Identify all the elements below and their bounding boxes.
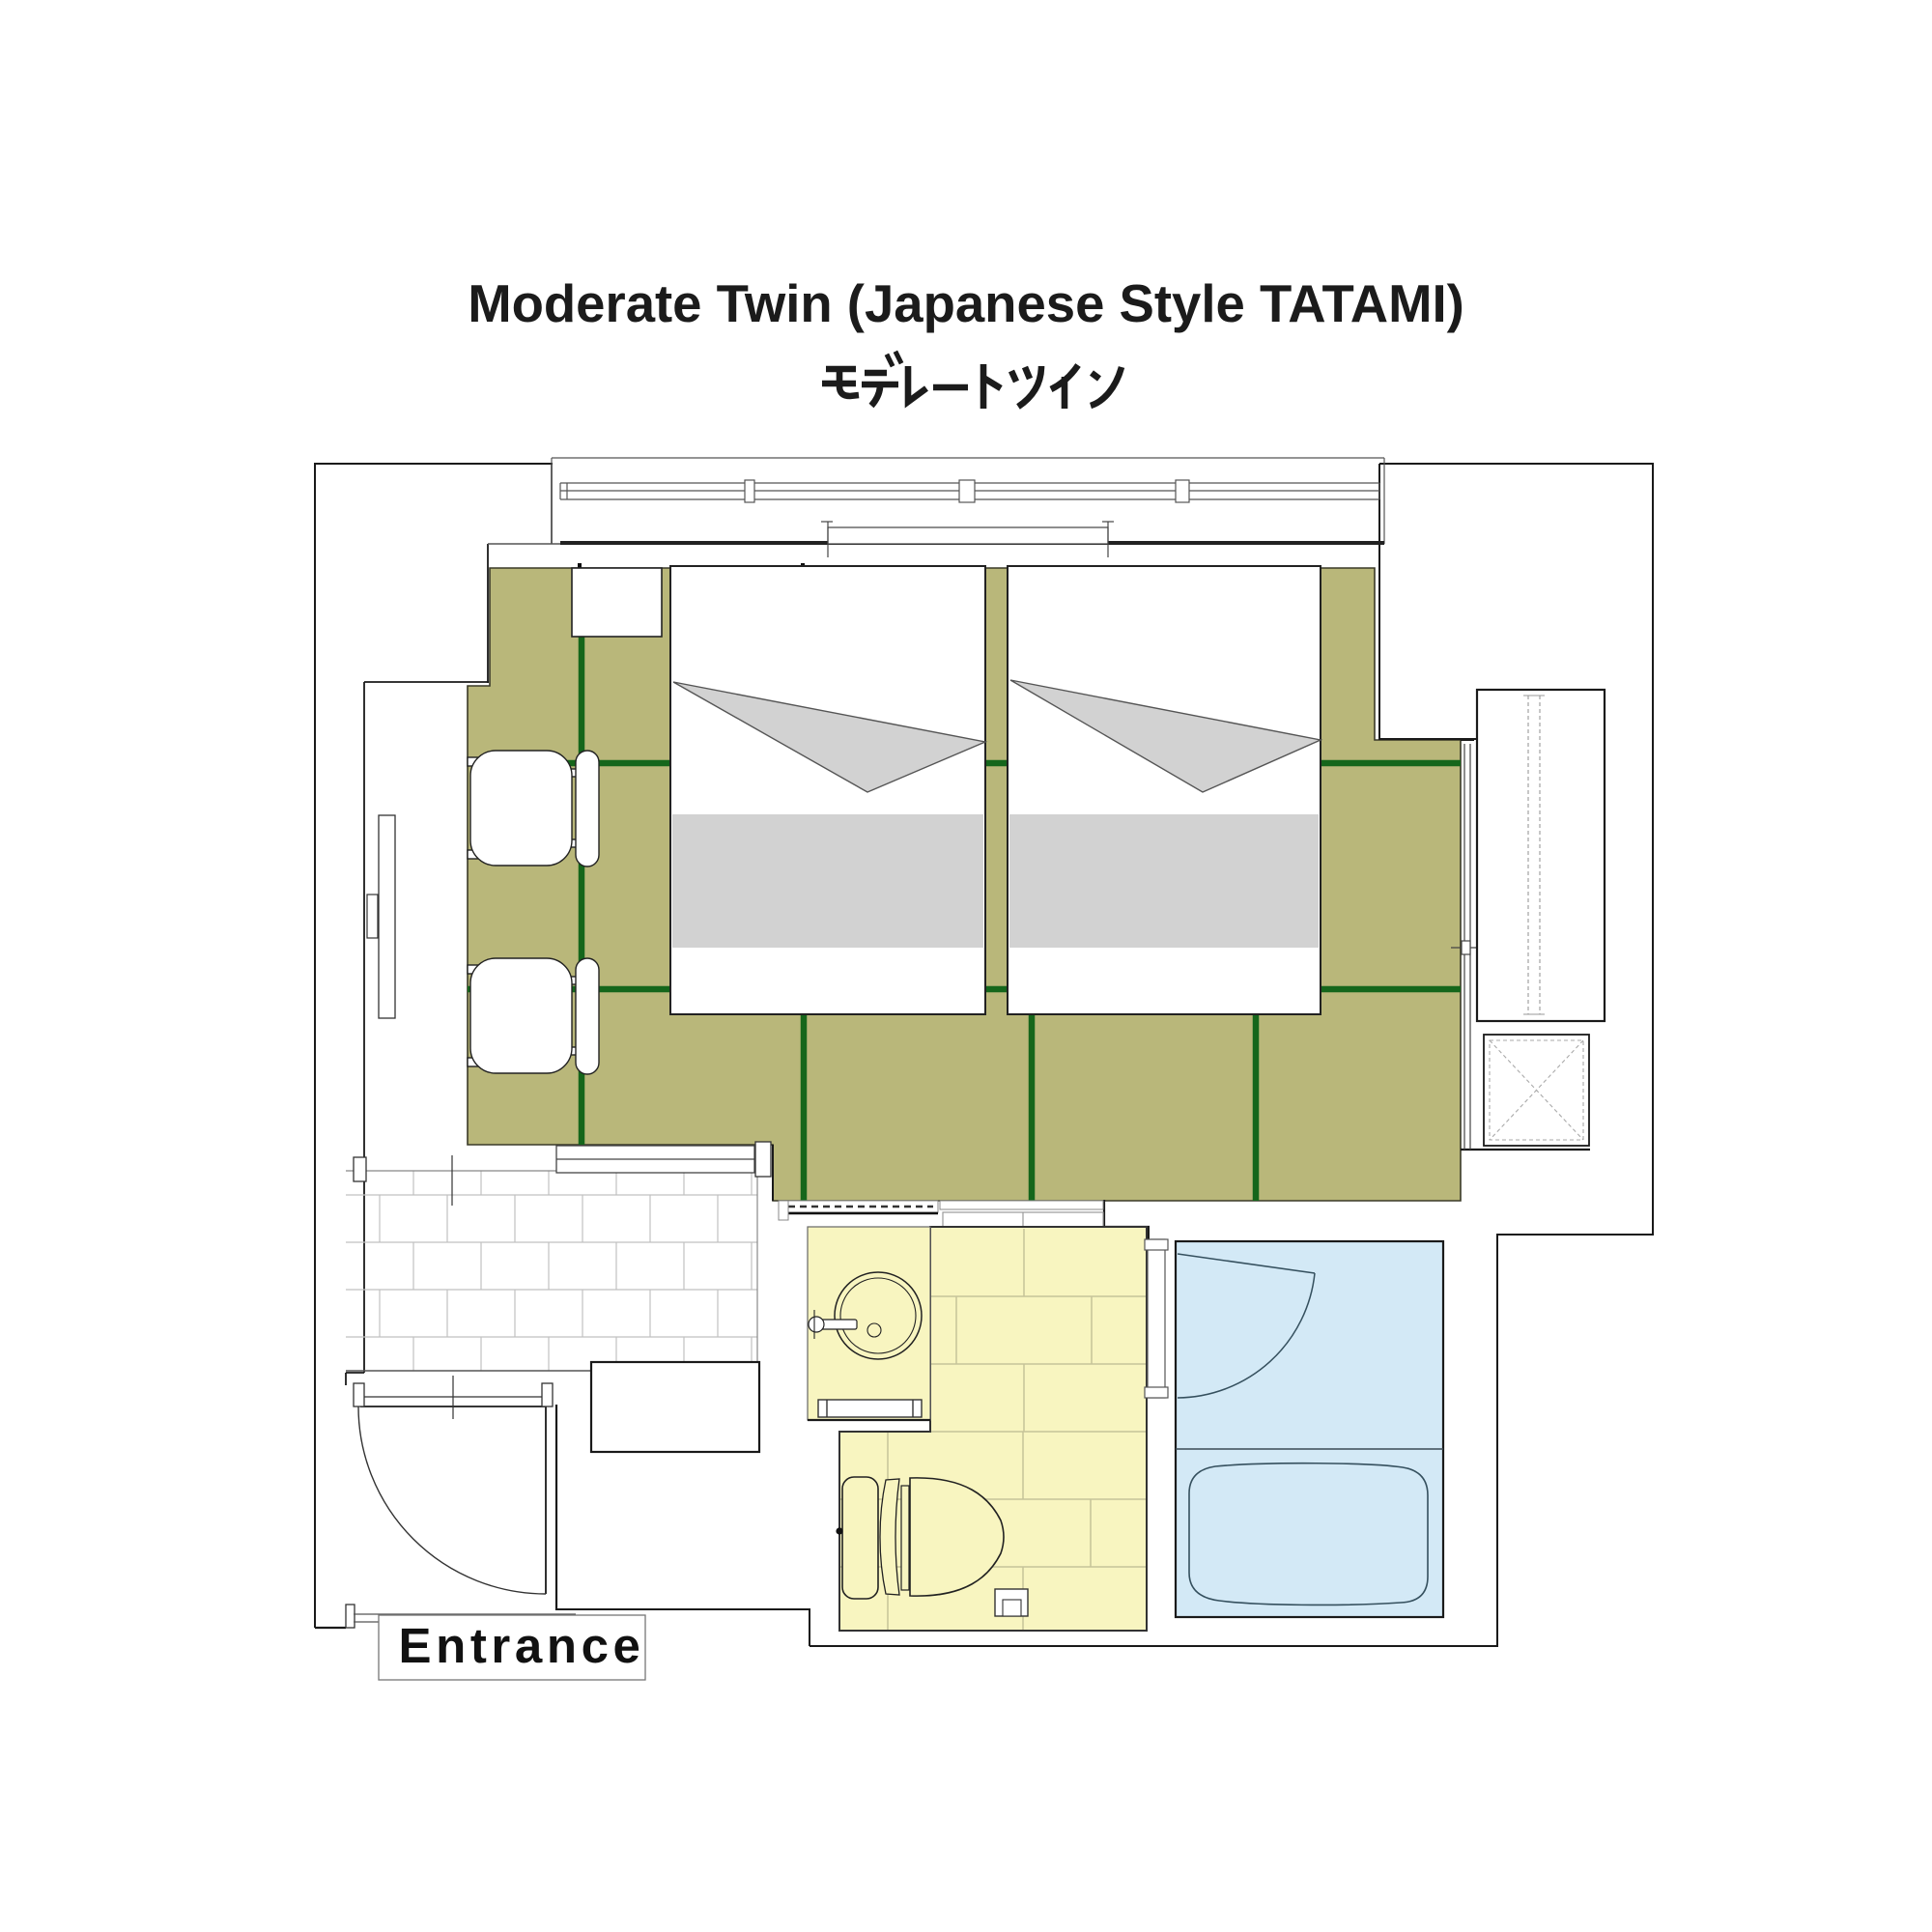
svg-text:Moderate Twin (Japanese Style: Moderate Twin (Japanese Style TATAMI) [468, 274, 1464, 333]
svg-text:Entrance: Entrance [398, 1618, 644, 1673]
